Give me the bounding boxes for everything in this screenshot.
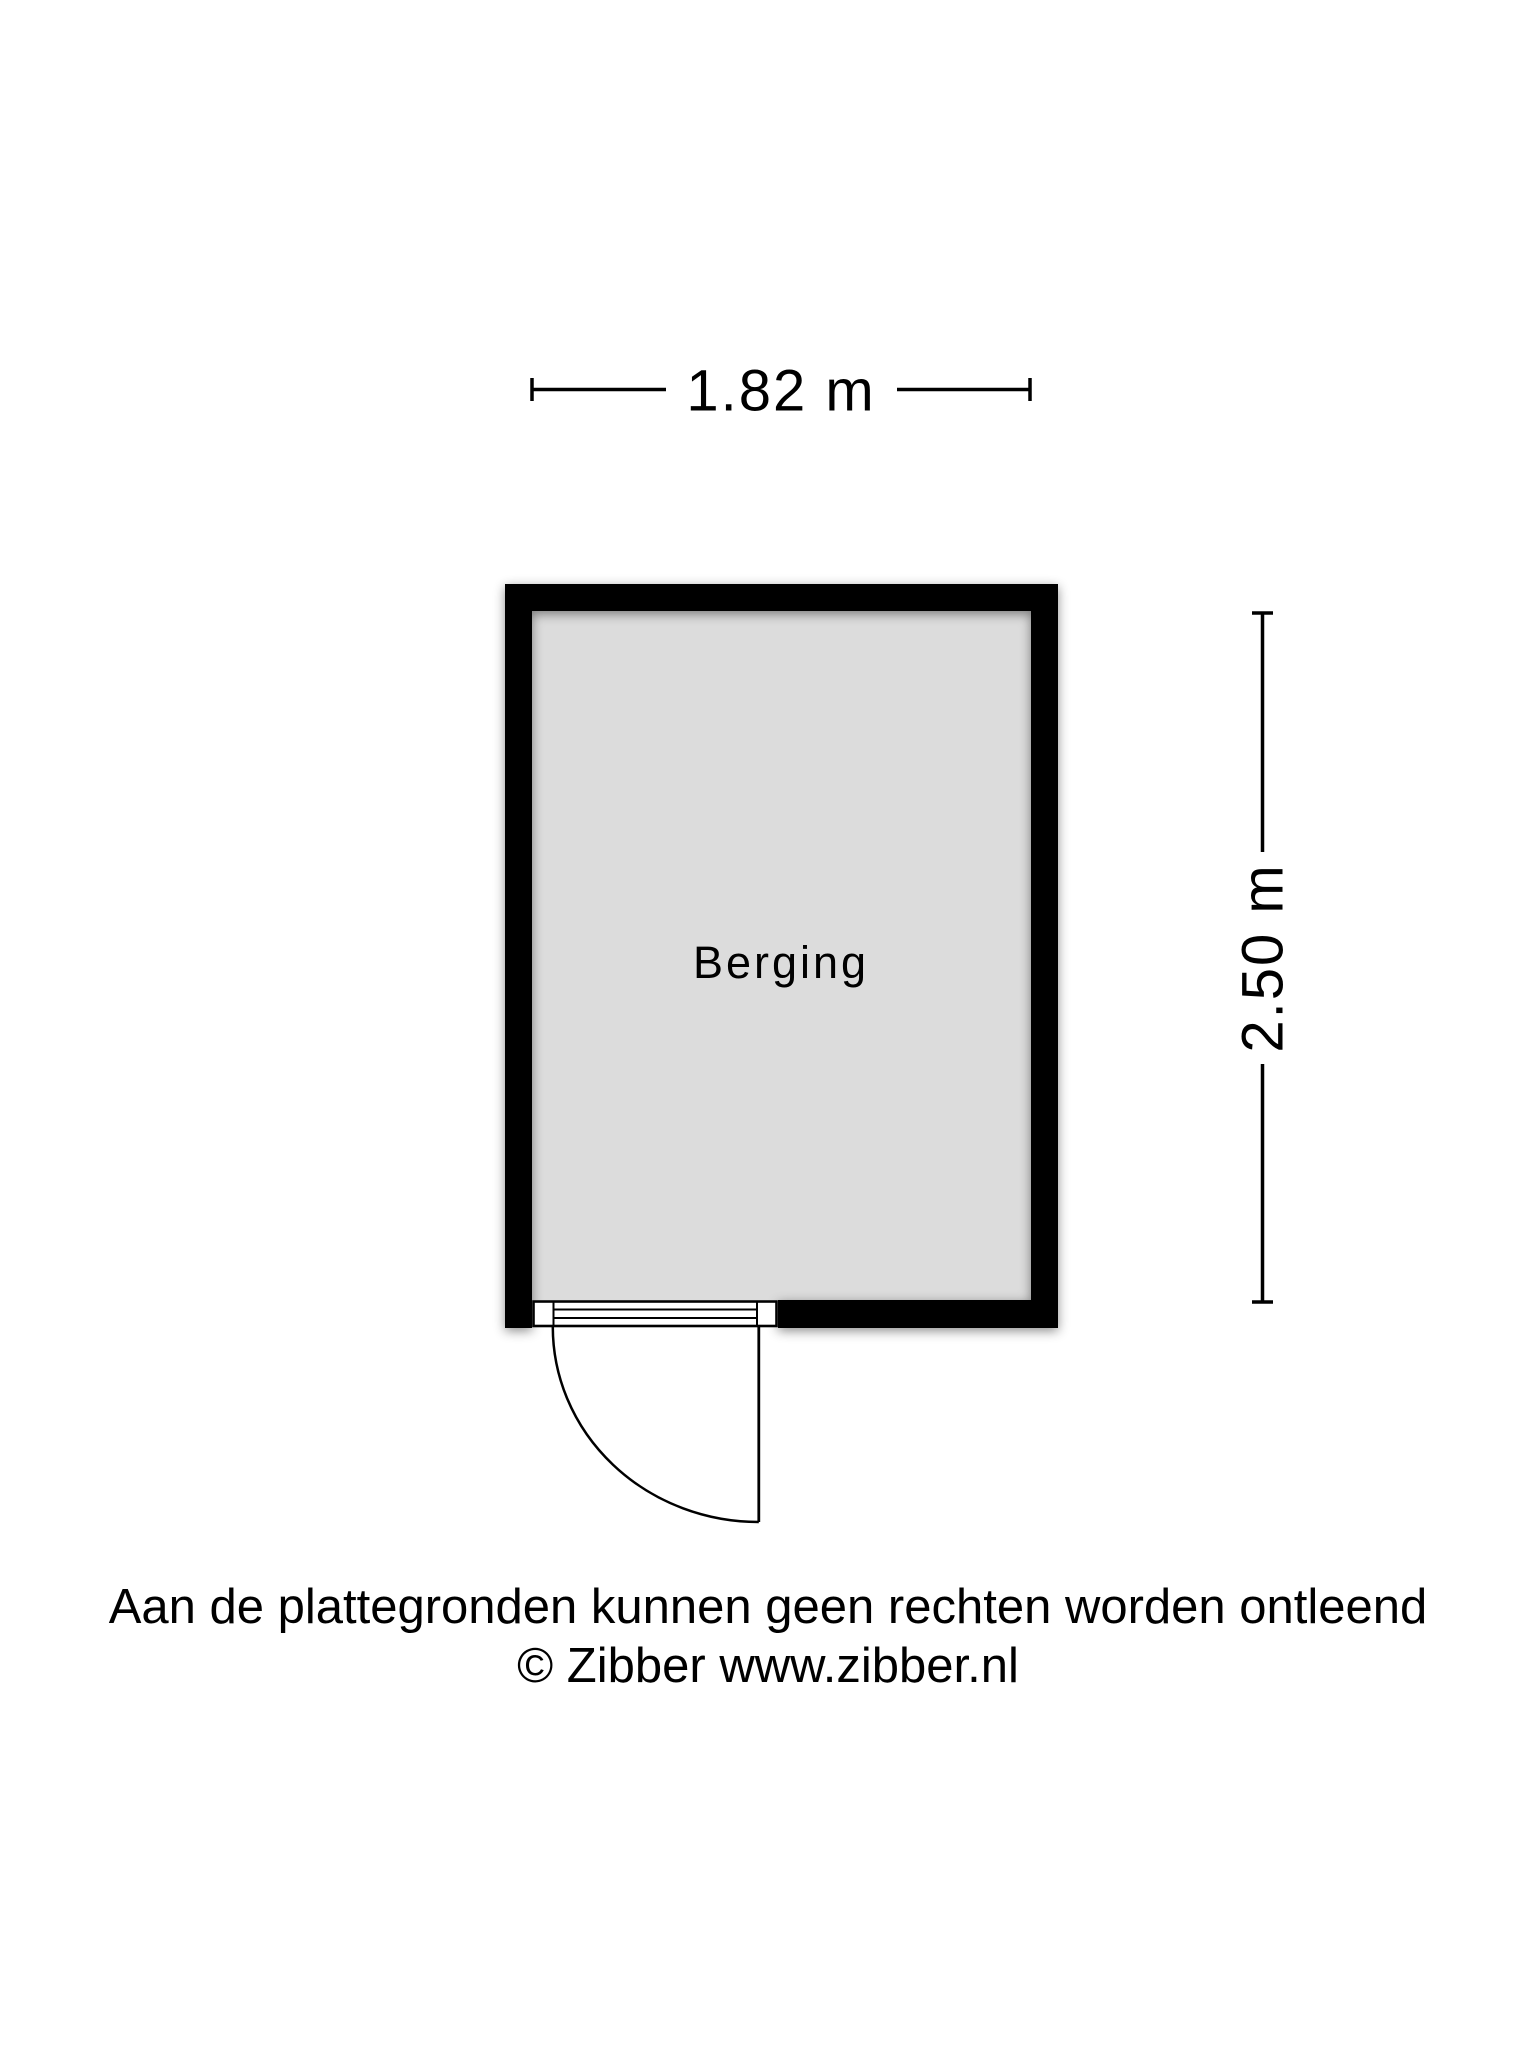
floor-plan-drawing bbox=[0, 0, 1536, 2048]
floor-plan-canvas: 1.82 m 2.50 m Berging Aan de plattegrond… bbox=[0, 0, 1536, 2048]
door-swing-arc bbox=[553, 1327, 759, 1522]
door-threshold bbox=[534, 1302, 777, 1327]
disclaimer-text: Aan de plattegronden kunnen geen rechten… bbox=[0, 1578, 1536, 1636]
copyright-text: © Zibber www.zibber.nl bbox=[0, 1637, 1536, 1695]
room-label: Berging bbox=[693, 937, 869, 989]
width-dimension-label: 1.82 m bbox=[686, 358, 875, 425]
height-dimension-label: 2.50 m bbox=[1230, 863, 1297, 1052]
